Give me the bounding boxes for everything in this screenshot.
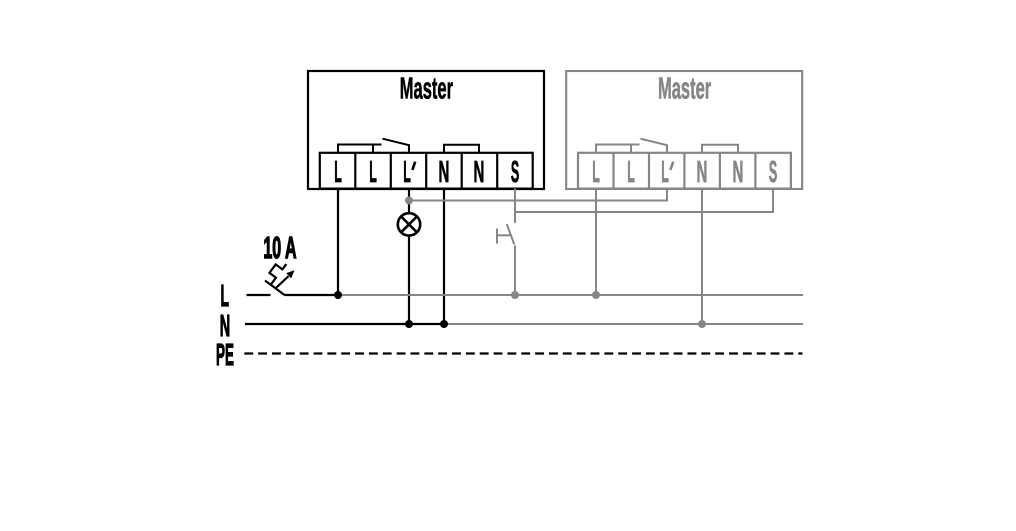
svg-text:Master: Master — [400, 71, 453, 106]
svg-text:PE: PE — [216, 338, 234, 372]
svg-text:L: L — [627, 154, 635, 189]
svg-text:N: N — [697, 154, 708, 189]
svg-text:N: N — [474, 154, 485, 189]
svg-text:L: L — [369, 154, 377, 189]
svg-text:L: L — [334, 154, 342, 189]
svg-text:S: S — [769, 154, 777, 189]
svg-text:L: L — [661, 154, 669, 189]
svg-text:N: N — [733, 154, 744, 189]
svg-text:L: L — [592, 154, 600, 189]
svg-text:S: S — [511, 154, 519, 189]
svg-text:N: N — [439, 154, 450, 189]
svg-text:L: L — [403, 154, 411, 189]
svg-text:10 A: 10 A — [263, 230, 296, 265]
svg-text:Master: Master — [658, 71, 711, 106]
